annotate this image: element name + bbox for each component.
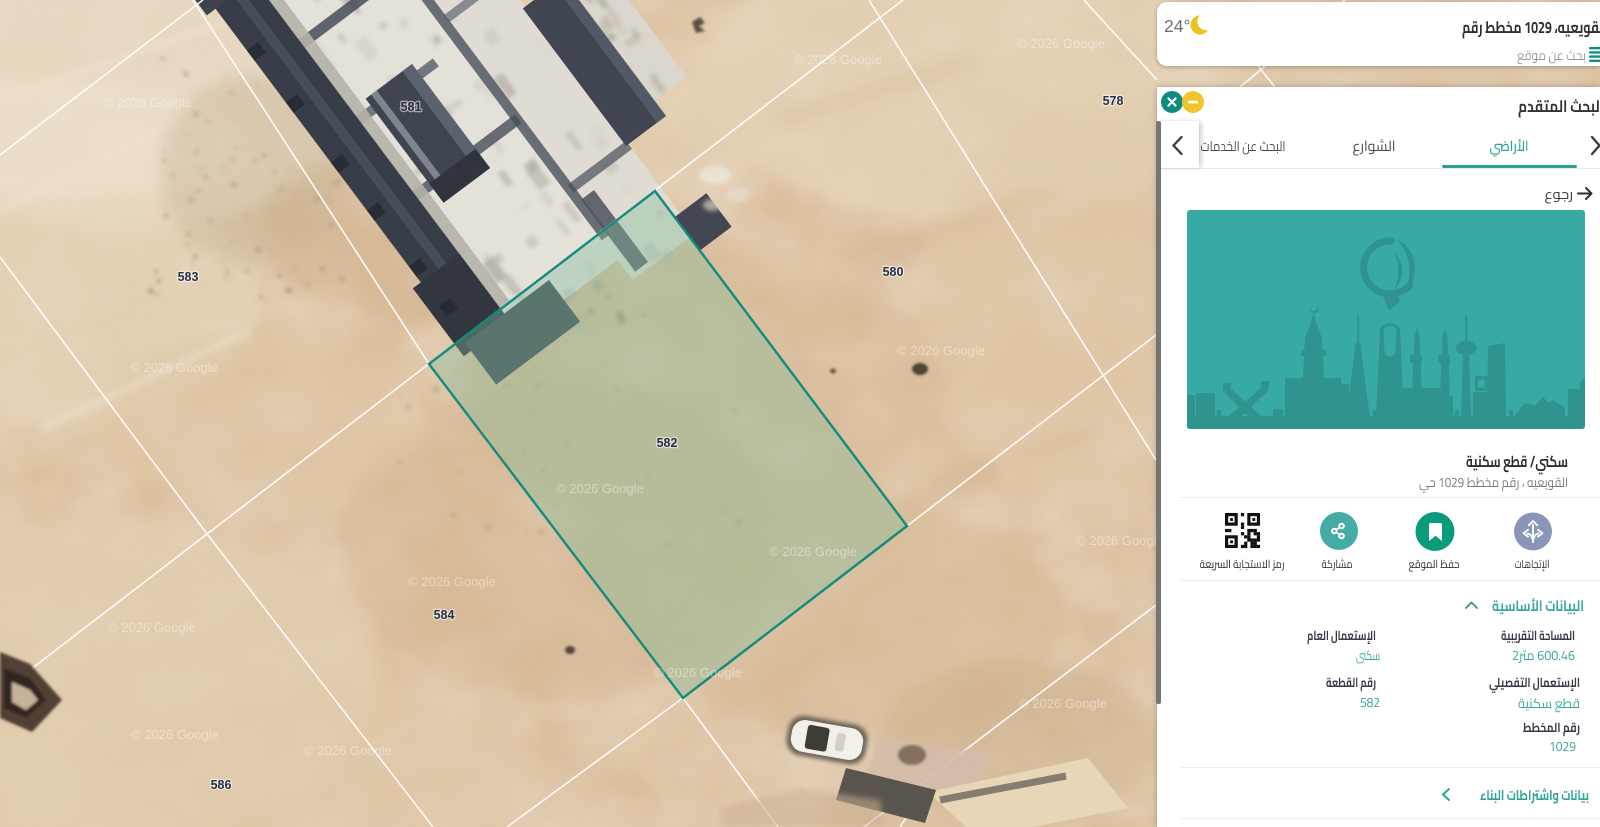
svg-text:24°: 24°	[1164, 16, 1190, 36]
